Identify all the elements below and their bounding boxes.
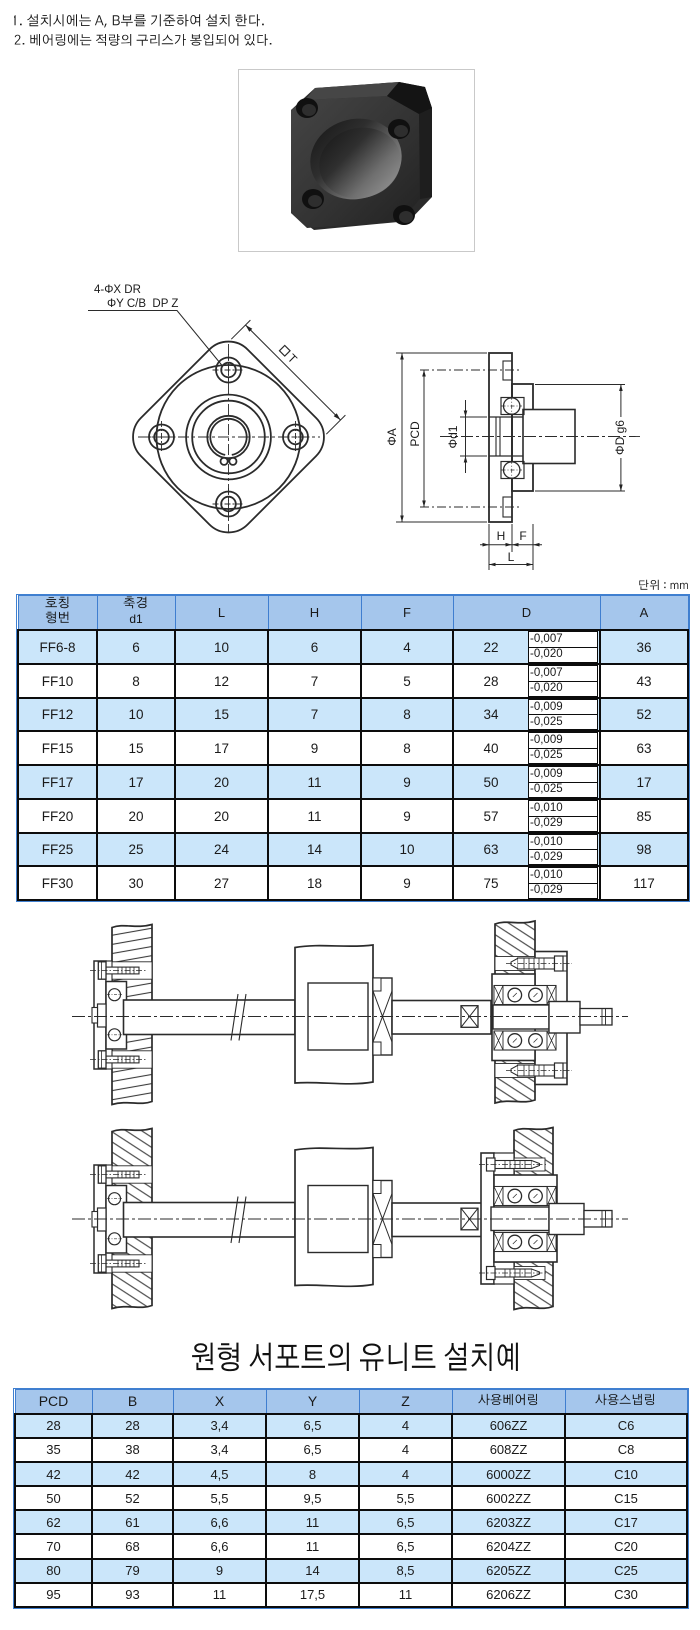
svg-text:PCD: PCD bbox=[408, 421, 422, 447]
svg-text:ΦD g6: ΦD g6 bbox=[613, 420, 627, 455]
svg-text:4-ΦX DR: 4-ΦX DR bbox=[94, 284, 141, 296]
svg-text:Φd1: Φd1 bbox=[446, 425, 460, 448]
svg-text:ΦY C/B DP Z: ΦY C/B DP Z bbox=[107, 298, 178, 310]
svg-text:H: H bbox=[497, 529, 506, 543]
svg-text:ΦA: ΦA bbox=[385, 428, 399, 446]
svg-text:F: F bbox=[519, 529, 526, 543]
svg-text:L: L bbox=[508, 550, 515, 564]
svg-text:d1: d1 bbox=[129, 612, 143, 626]
